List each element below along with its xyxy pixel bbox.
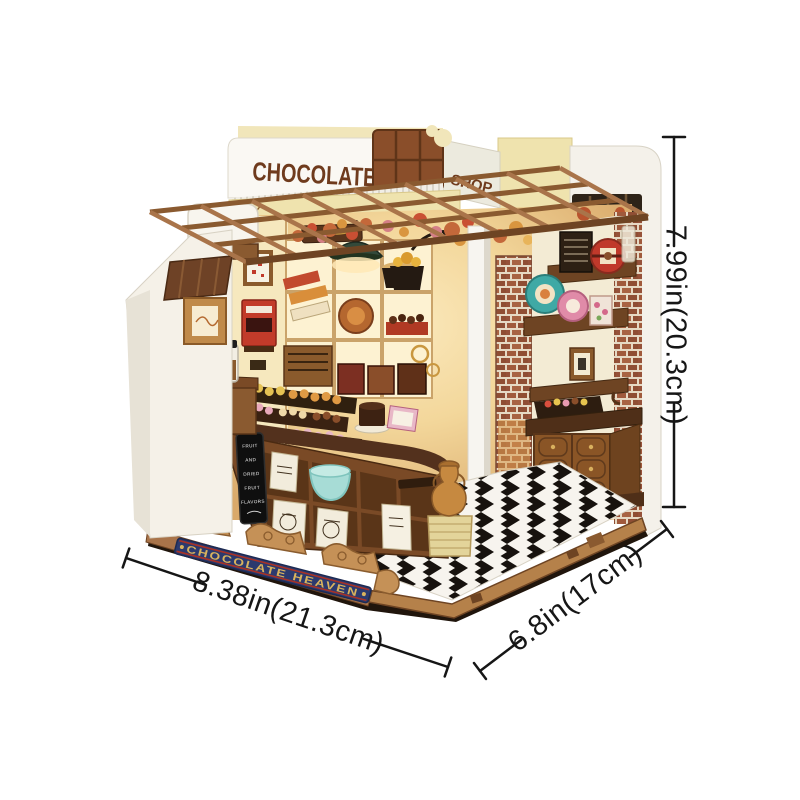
framed-photos-row xyxy=(338,364,426,394)
exterior-picture-frame xyxy=(184,298,226,344)
height-label: 7.99in(20.3cm) xyxy=(659,225,691,425)
menu-line: FRUIT xyxy=(242,443,258,449)
menu-line: DRIED xyxy=(243,471,260,477)
wooden-register xyxy=(284,346,332,386)
menu-board: FRUIT AND DRIED FRUIT FLAVORS xyxy=(236,433,268,524)
woven-basket xyxy=(428,516,472,556)
wall-slot xyxy=(250,360,266,370)
pink-tin xyxy=(558,291,588,321)
menu-line: FRUIT xyxy=(244,485,260,491)
red-tin xyxy=(591,239,625,273)
floral-box xyxy=(590,296,612,325)
menu-line: AND xyxy=(245,457,256,463)
product-photo-chocolate-shop-miniature: CHOCOLATE SHOP xyxy=(0,0,800,800)
wall-shelf-upper xyxy=(548,226,636,284)
awning xyxy=(164,256,232,300)
pink-counter-sign xyxy=(387,406,418,432)
red-dispenser-box xyxy=(242,300,276,352)
candy-jar xyxy=(622,226,635,262)
wall-shade xyxy=(126,290,150,537)
miniature-house: CHOCOLATE SHOP xyxy=(126,125,661,622)
calendar-frame xyxy=(560,232,592,272)
small-wall-frame xyxy=(570,348,594,380)
scene-canvas: CHOCOLATE SHOP xyxy=(0,0,800,800)
chocolate-cake xyxy=(355,402,389,433)
paper-bag xyxy=(380,502,413,552)
height-dimension: 7.99in(20.3cm) xyxy=(659,137,691,507)
depth-right-tick xyxy=(661,521,673,537)
